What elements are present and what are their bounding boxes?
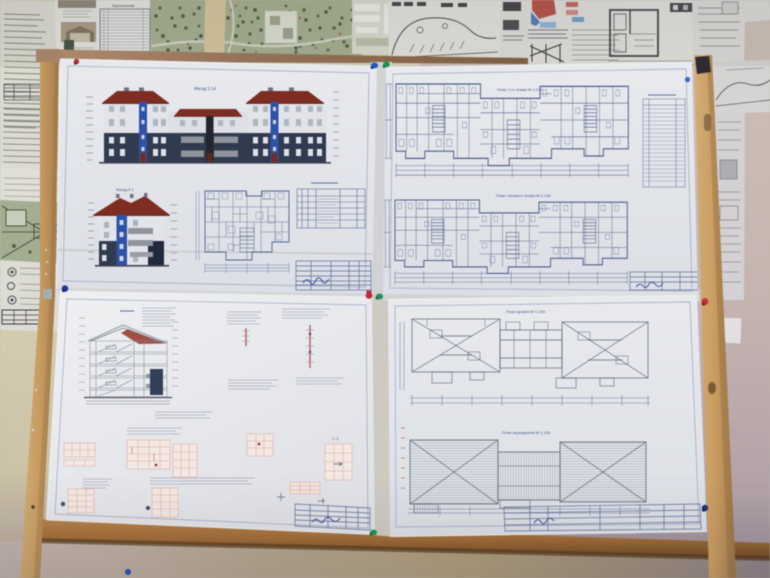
svg-text:План типового этажа М 1:100: План типового этажа М 1:100 (496, 193, 551, 198)
svg-text:1–1: 1–1 (332, 436, 339, 441)
svg-text:План кровли М 1:100: План кровли М 1:100 (506, 309, 546, 314)
svg-text:Фасад 4-1: Фасад 4-1 (116, 188, 134, 192)
svg-text:План перекрытия М 1:100: План перекрытия М 1:100 (502, 430, 551, 435)
svg-text:План 1-го этажа М 1:100: План 1-го этажа М 1:100 (497, 87, 543, 92)
svg-text:Фасад 1-14: Фасад 1-14 (194, 86, 217, 91)
